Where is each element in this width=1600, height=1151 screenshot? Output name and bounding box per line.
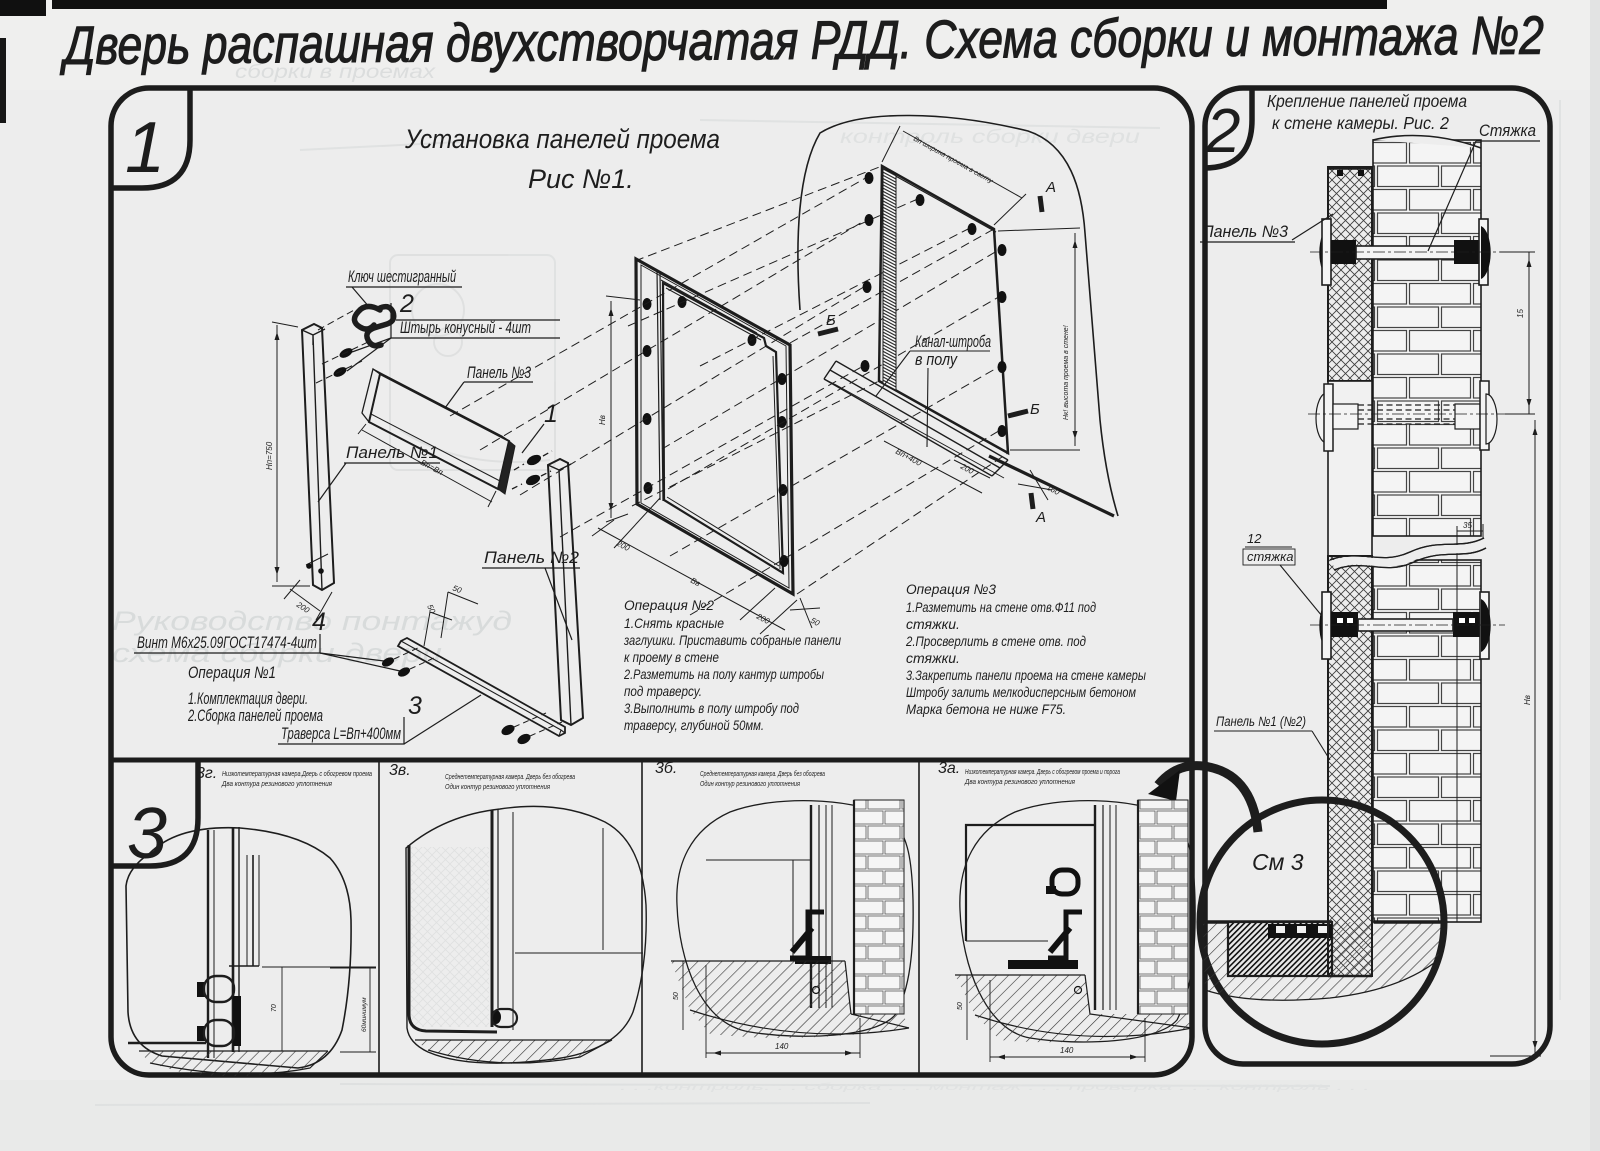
- svg-text:контроль сборки двери: контроль сборки двери: [840, 127, 1141, 148]
- svg-text:50: 50: [673, 992, 680, 1000]
- svg-text:15: 15: [1516, 309, 1525, 318]
- svg-text:3.Закрепить панели проема на с: 3.Закрепить панели проема на стене камер…: [906, 667, 1147, 683]
- svg-text:к проему в стене: к проему в стене: [624, 649, 719, 665]
- svg-text:Операция №3: Операция №3: [906, 581, 996, 597]
- svg-text:Панель №2: Панель №2: [484, 549, 579, 567]
- svg-text:Ключ шестигранный: Ключ шестигранный: [348, 268, 456, 286]
- svg-text:12: 12: [1247, 531, 1262, 546]
- svg-text:Низкотемпературная камера.Двер: Низкотемпературная камера.Дверь с обогре…: [222, 769, 372, 778]
- svg-text:Нв: Нв: [598, 415, 607, 425]
- svg-text:под траверсу.: под траверсу.: [624, 683, 702, 699]
- svg-text:Траверса L=Вп+400мм: Траверса L=Вп+400мм: [281, 725, 401, 743]
- svg-text:3г.: 3г.: [196, 765, 217, 782]
- svg-text:140: 140: [1060, 1046, 1074, 1055]
- svg-text:1: 1: [125, 108, 165, 188]
- svg-text:Панель №3: Панель №3: [467, 364, 532, 382]
- svg-text:Канал-штроба: Канал-штроба: [915, 333, 991, 351]
- svg-text:3б.: 3б.: [655, 760, 677, 777]
- svg-text:2: 2: [1205, 97, 1240, 166]
- svg-text:заглушки. Приставить собраные: заглушки. Приставить собраные панели: [623, 632, 841, 648]
- svg-text:Нк! высота проема в стене!: Нк! высота проема в стене!: [1063, 325, 1070, 420]
- svg-text:Один контур резинового уплотне: Один контур резинового уплотнения: [445, 782, 550, 791]
- svg-text:Штробу залить мелкодисперсным: Штробу залить мелкодисперсным бетоном: [906, 684, 1136, 700]
- svg-text:Дверь распашная двухстворчатая: Дверь распашная двухстворчатая РДД. Схем…: [60, 6, 1545, 76]
- svg-text:А: А: [1035, 509, 1046, 526]
- svg-text:Б: Б: [1030, 401, 1040, 418]
- svg-text:3в.: 3в.: [389, 762, 411, 779]
- svg-text:4: 4: [312, 608, 326, 636]
- svg-text:Установка панелей проема: Установка панелей проема: [404, 124, 720, 154]
- svg-text:стяжки.: стяжки.: [906, 616, 960, 632]
- svg-text:Среднетемпературная камера. Дв: Среднетемпературная камера. Дверь без об…: [445, 772, 575, 781]
- svg-text:Панель №3: Панель №3: [1202, 223, 1289, 241]
- svg-text:Два контура резинового уплотне: Два контура резинового уплотнения: [221, 779, 332, 788]
- svg-text:Нп=750: Нп=750: [265, 441, 274, 470]
- svg-text:Операция №2: Операция №2: [624, 597, 714, 613]
- svg-text:2.Просверлить в стене отв. п: 2.Просверлить в стене отв. под: [905, 633, 1086, 649]
- svg-text:Низкотемпературная камера. Две: Низкотемпературная камера. Дверь с обогр…: [965, 767, 1120, 776]
- svg-text:Панель №1 (№2): Панель №1 (№2): [1216, 714, 1306, 729]
- svg-text:траверсу, глубиной 50мм.: траверсу, глубиной 50мм.: [624, 717, 764, 733]
- svg-text:2.Сборка панелей проема: 2.Сборка панелей проема: [187, 707, 323, 725]
- svg-text:Марка бетона не ниже F75.: Марка бетона не ниже F75.: [906, 701, 1066, 717]
- svg-text:в полу: в полу: [915, 351, 959, 369]
- svg-text:стяжка: стяжка: [1247, 549, 1293, 564]
- svg-text:Рис №1.: Рис №1.: [528, 164, 634, 194]
- svg-text:1.Снять красные: 1.Снять красные: [624, 615, 724, 631]
- svg-text:1.Разметить на стене отв.Ф11 п: 1.Разметить на стене отв.Ф11 под: [906, 599, 1096, 615]
- svg-text:Винт М6х25.09ГОСТ17474-4шт: Винт М6х25.09ГОСТ17474-4шт: [137, 634, 317, 652]
- svg-text:Нв: Нв: [1523, 695, 1532, 705]
- svg-text:3: 3: [127, 794, 167, 874]
- svg-text:2.Разметить на полу кантур штр: 2.Разметить на полу кантур штробы: [623, 666, 824, 682]
- svg-text:Среднетемпературная камера. Дв: Среднетемпературная камера. Дверь без об…: [700, 769, 825, 778]
- svg-text:50: 50: [957, 1002, 964, 1010]
- svg-text:См 3: См 3: [1252, 849, 1304, 875]
- svg-text:Один контур резинового уплотне: Один контур резинового уплотнения: [700, 779, 800, 788]
- svg-text:35: 35: [1463, 521, 1472, 530]
- svg-text:3: 3: [408, 692, 422, 720]
- svg-text:Крепление панелей проема: Крепление панелей проема: [1267, 91, 1467, 111]
- svg-text:140: 140: [775, 1042, 789, 1051]
- svg-text:70: 70: [271, 1004, 278, 1012]
- svg-text:2: 2: [399, 290, 414, 318]
- svg-text:. . .контроль. . . сборка . .: . . .контроль. . . сборка . . . монтаж .…: [620, 1081, 1370, 1093]
- svg-text:Стяжка: Стяжка: [1479, 122, 1536, 140]
- svg-text:стяжки.: стяжки.: [906, 650, 960, 666]
- svg-text:Операция №1: Операция №1: [188, 664, 276, 682]
- svg-text:Штырь конусный - 4шт: Штырь конусный - 4шт: [400, 319, 531, 337]
- svg-text:3.Выполнить в полу штробу под: 3.Выполнить в полу штробу под: [624, 700, 799, 716]
- svg-text:Два контура резинового уплотне: Два контура резинового уплотнения: [964, 777, 1075, 786]
- svg-text:к стене камеры. Рис. 2: к стене камеры. Рис. 2: [1272, 113, 1449, 133]
- svg-text:60минимум: 60минимум: [361, 997, 368, 1032]
- svg-text:3а.: 3а.: [938, 760, 960, 777]
- svg-text:А: А: [1045, 179, 1056, 196]
- svg-text:1.Комплектация двери.: 1.Комплектация двери.: [188, 690, 308, 708]
